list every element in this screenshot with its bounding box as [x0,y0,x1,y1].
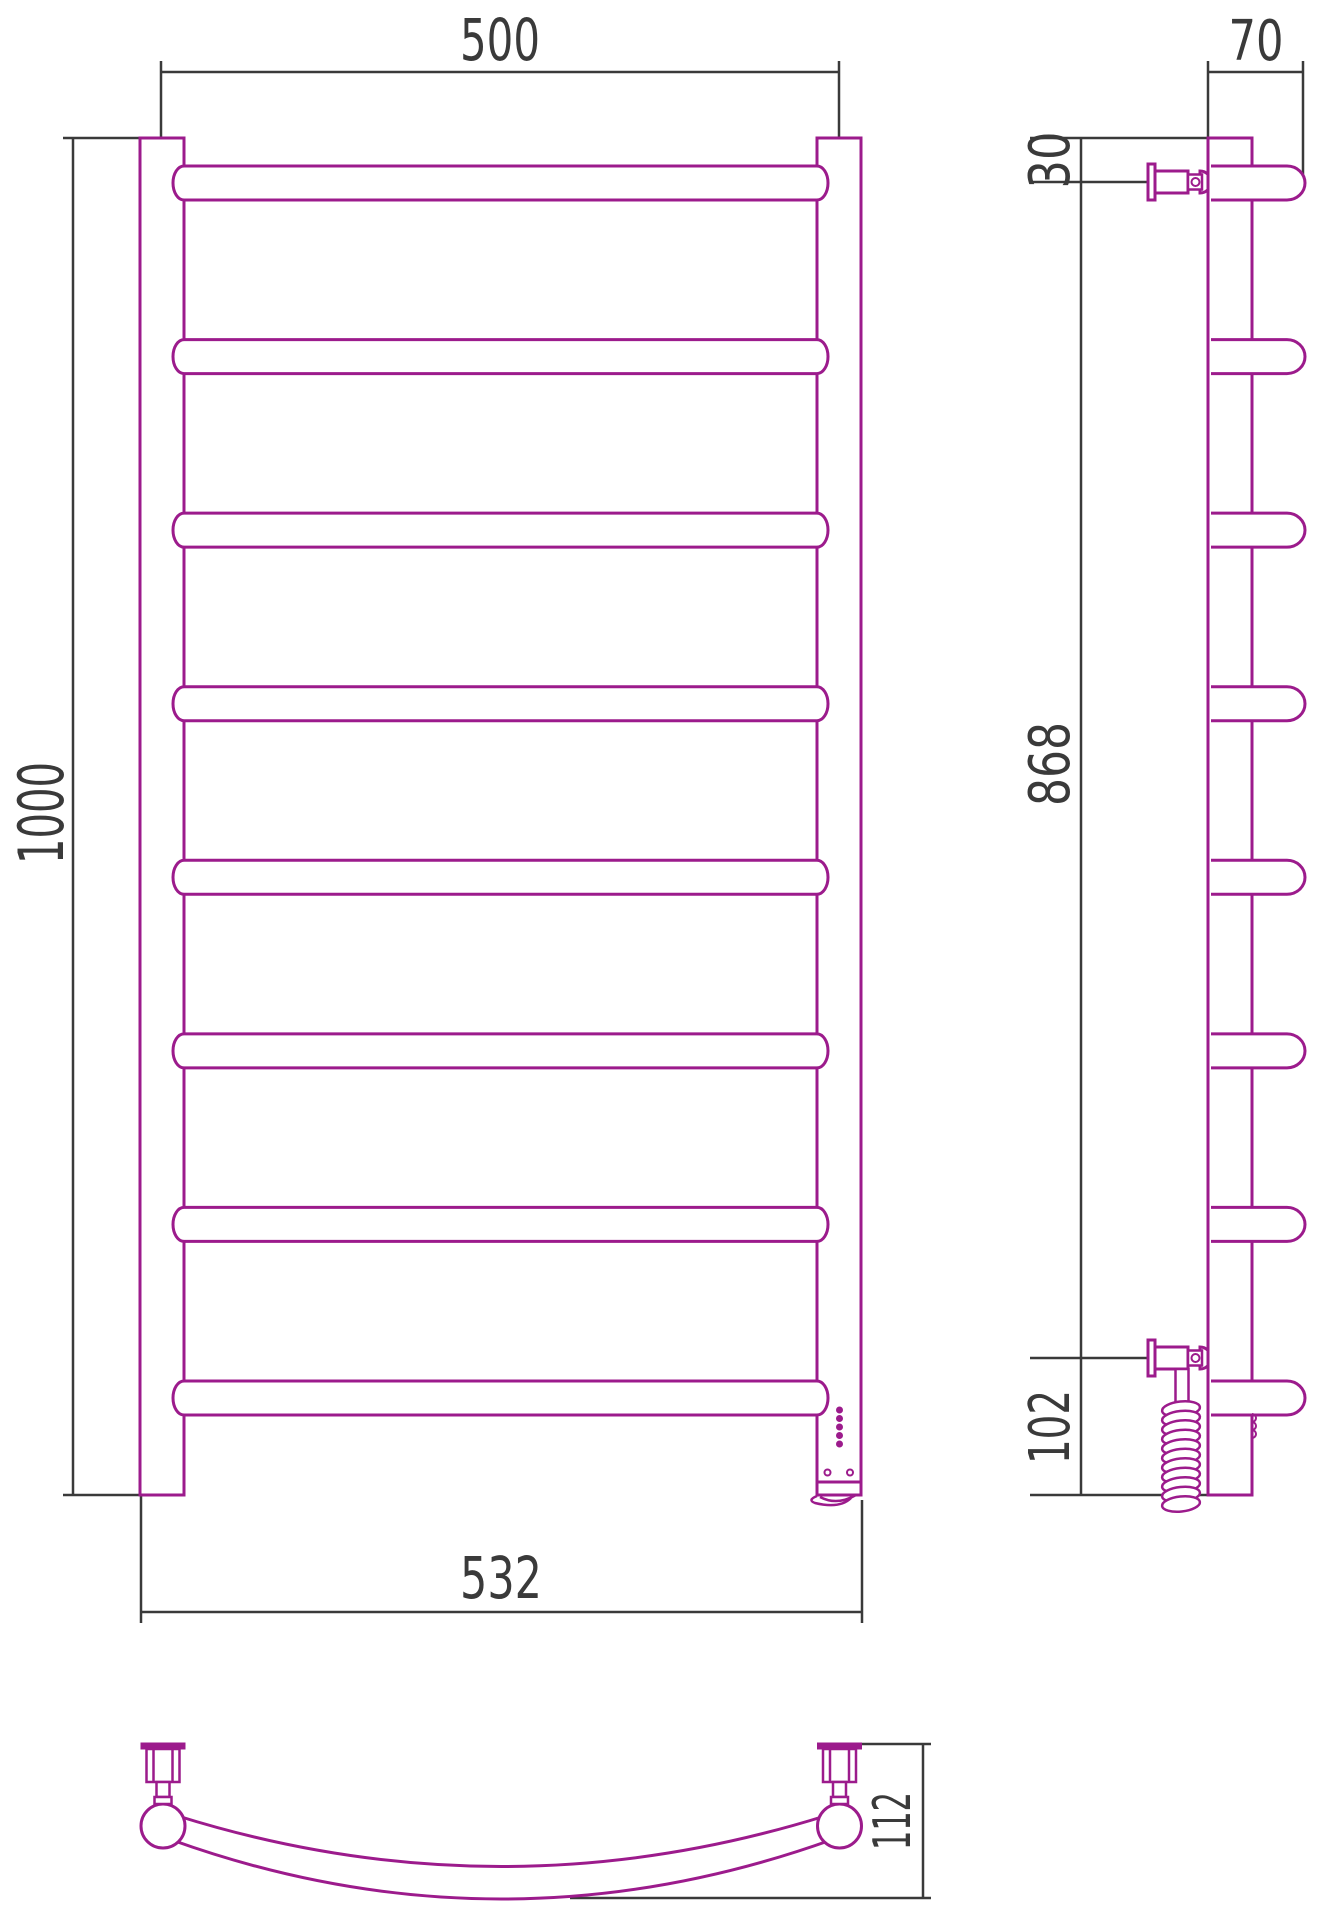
mount-neck [833,1782,846,1797]
mount-neck [157,1782,170,1797]
led-dot-icon [836,1407,843,1414]
bracket-flange [1148,164,1155,200]
housing-screw-left [825,1470,831,1476]
bracket-body [1155,1347,1188,1369]
rung [173,1207,828,1241]
mount-foot [831,1797,848,1804]
bracket-pin-icon [1192,178,1200,186]
rung-end-mask [1211,165,1288,201]
bottom-arc-depth-dimension-label: 112 [863,1792,923,1850]
bottom-left-mount [141,1743,185,1804]
rung [173,1034,828,1068]
mount-stem [823,1749,856,1782]
dimension-lines [63,61,1303,1898]
coiled-cable [1161,1400,1200,1514]
dimension-labels: 500 1000 532 70 30 868 102 112 [5,6,1284,1850]
bottom-right-mount [818,1743,862,1804]
rung-end-mask [1211,1033,1288,1069]
housing-screw-right [847,1470,853,1476]
rung [173,860,828,894]
power-cable [1161,1369,1200,1513]
rung [173,1381,828,1415]
bracket-pin-icon [1192,1354,1200,1362]
led-dot-icon [836,1432,843,1439]
towel-rail-drawing: 500 1000 532 70 30 868 102 112 [0,0,1325,1920]
rung-end-mask [1211,1380,1288,1416]
front-view [140,138,861,1505]
rung [173,513,828,547]
rung-end-mask [1211,859,1288,895]
bracket-flange [1148,1340,1155,1376]
led-dot-icon [836,1415,843,1422]
led-dot-icon [836,1424,843,1431]
bottom-view [141,1743,862,1899]
rung [173,340,828,374]
rung-end-mask [1211,686,1288,722]
curved-rung-top-arc [178,1816,825,1867]
side-top-bracket [1148,164,1211,200]
rung-end-mask [1211,339,1288,375]
right-rail-section-circle [818,1804,862,1848]
side-bottom-offset-dimension-label: 102 [1018,1390,1083,1464]
side-view [1148,138,1305,1513]
rung [173,166,828,200]
technical-drawing-page: 500 1000 532 70 30 868 102 112 [0,0,1325,1920]
led-dot-icon [836,1441,843,1448]
left-rail-section-circle [141,1804,185,1848]
side-bracket-span-dimension-label: 868 [1018,722,1083,806]
curved-rung-bottom-arc [172,1840,831,1899]
mount-stem [147,1749,180,1782]
bracket-body [1155,171,1188,193]
mount-foot [155,1797,172,1804]
rung-end-mask [1211,1206,1288,1242]
front-width-dimension-label: 500 [460,6,540,74]
front-height-dimension-label: 1000 [5,762,78,864]
rung [173,687,828,721]
side-top-offset-dimension-label: 30 [1018,132,1083,189]
front-overall-width-dimension-label: 532 [460,1544,542,1612]
rung-end-mask [1211,512,1288,548]
front-rungs [173,166,828,1415]
side-depth-dimension-label: 70 [1229,9,1284,74]
